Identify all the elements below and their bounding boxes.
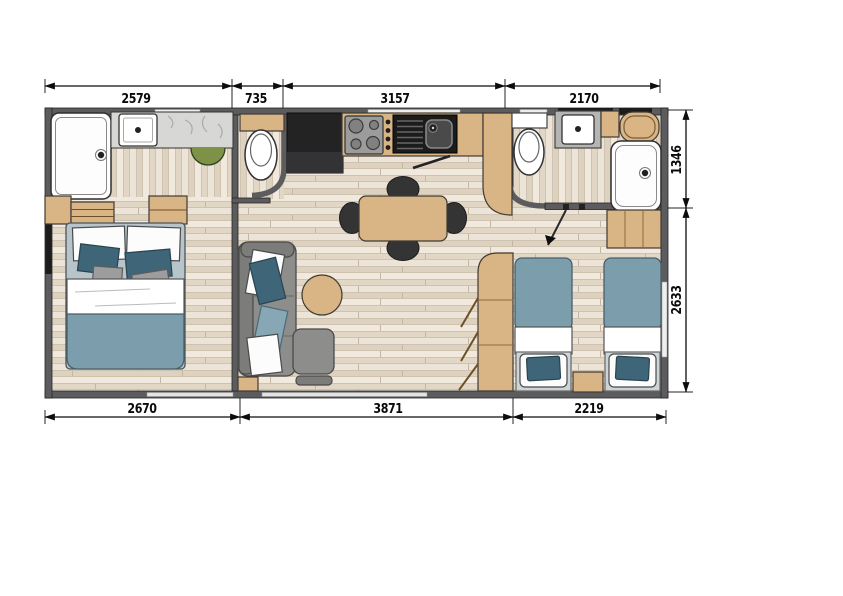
toilet-icon (245, 130, 277, 180)
dim-label-bottom-1: 2670 (127, 401, 156, 417)
stove-burners-icon (345, 116, 390, 154)
laundry-basket-icon (620, 112, 659, 142)
shower-tray-icon (51, 113, 111, 199)
dim-label-top-2: 735 (245, 91, 267, 107)
shower-tray-icon (611, 141, 661, 211)
bath-cabinet (601, 111, 619, 137)
dresser (71, 202, 114, 224)
dim-label-right-1: 1346 (669, 145, 685, 174)
kitchen-black-unit-lower (287, 152, 343, 173)
floor-plan-drawing (0, 0, 843, 596)
bedroom2 (459, 253, 661, 392)
window-bottom-1 (147, 393, 233, 397)
dim-label-top-4: 2170 (569, 91, 598, 107)
floor-plan: 2579 735 3157 2170 2670 3871 2219 1346 2… (0, 0, 843, 596)
wall-wc-stub (232, 198, 270, 203)
wardrobe-hall (607, 210, 661, 248)
window-right (662, 282, 667, 357)
nightstand-left (45, 196, 71, 224)
sink-icon (555, 111, 601, 148)
dim-label-bottom-3: 2219 (574, 401, 603, 417)
dim-label-top-1: 2579 (121, 91, 150, 107)
wall-bedroom1-living (232, 115, 238, 391)
single-bed-icon (604, 258, 661, 391)
sink-icon (119, 114, 157, 146)
kitchen-counter-end (483, 113, 512, 215)
toilet-icon (512, 113, 547, 175)
dining-table-icon (359, 196, 447, 241)
window-bottom-2 (262, 393, 427, 397)
dim-label-top-3: 3157 (380, 91, 409, 107)
side-cabinet (238, 377, 258, 391)
vanity-counter (111, 112, 233, 148)
single-bed-icon (515, 258, 572, 391)
nightstand-twin (573, 372, 603, 392)
kitchen-sink-icon (393, 115, 457, 153)
dim-label-bottom-2: 3871 (373, 401, 402, 417)
double-bed-icon (66, 223, 185, 369)
coffee-table-icon (302, 275, 342, 315)
dim-label-right-2: 2633 (669, 285, 685, 314)
wc-shelf (240, 114, 284, 131)
